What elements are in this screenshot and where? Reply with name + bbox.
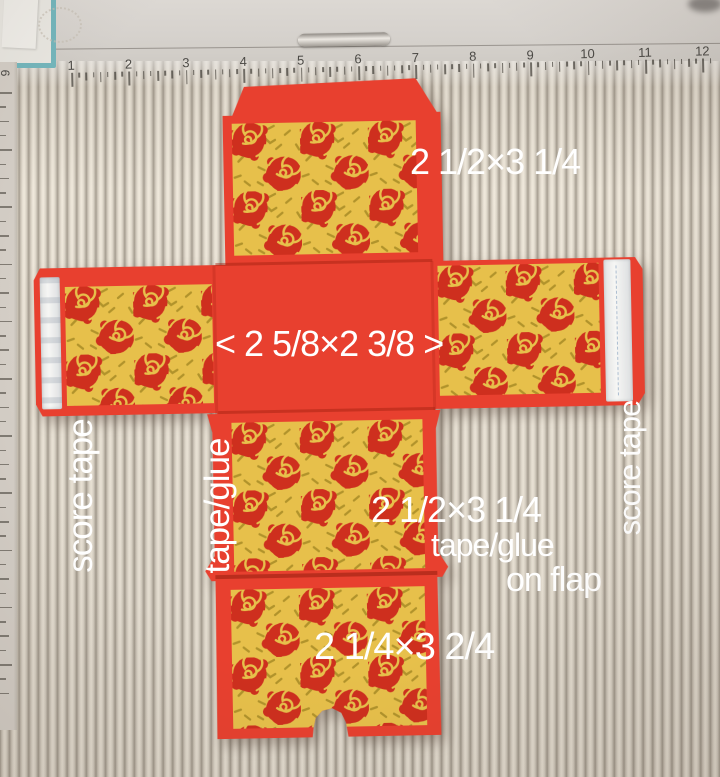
ruler-tick xyxy=(85,72,87,80)
ruler-tick xyxy=(236,69,238,74)
ruler-tick xyxy=(595,61,597,66)
side-ruler-tick xyxy=(0,507,6,509)
side-ruler-tick xyxy=(0,378,12,380)
ruler-tick xyxy=(136,71,138,76)
ruler-tick xyxy=(609,61,611,66)
ruler-tick xyxy=(473,64,475,78)
ruler-tick xyxy=(437,64,439,69)
ruler-tick xyxy=(351,66,353,71)
ruler-tick xyxy=(71,73,73,87)
annotation-tape-glue-left: tape/glue xyxy=(198,438,238,573)
ruler-tick xyxy=(265,68,267,73)
ruler-tick xyxy=(702,58,704,72)
side-ruler-number: 9 xyxy=(0,70,12,77)
annotation-center-size: < 2 5/8×2 3/8 > xyxy=(215,323,443,365)
tape-liner-marks xyxy=(40,277,63,409)
ruler-tick xyxy=(78,73,80,78)
ruler-inch-number: 1 xyxy=(67,58,75,73)
pattern-paper-top xyxy=(232,120,419,256)
ruler-tick xyxy=(114,72,116,80)
ruler-tick xyxy=(401,65,403,73)
ruler-tick xyxy=(157,71,159,81)
side-ruler-tick xyxy=(0,164,6,166)
ruler-tick xyxy=(164,71,166,76)
ruler-tick xyxy=(516,63,518,71)
ruler-tick xyxy=(250,69,252,74)
ruler-tick xyxy=(179,70,181,75)
side-ruler-tick xyxy=(0,392,6,394)
ruler-tick xyxy=(129,71,131,85)
side-ruler-tick xyxy=(0,664,12,666)
side-ruler-tick xyxy=(0,192,6,194)
ruler-tick xyxy=(638,60,640,65)
ruler-tick xyxy=(100,72,102,82)
ruler-inch-number: 5 xyxy=(297,53,305,68)
ruler-tick xyxy=(530,62,532,76)
ruler-tick xyxy=(222,69,224,74)
side-ruler-tick xyxy=(0,492,12,494)
side-ruler-tick xyxy=(0,535,6,537)
side-ruler-tick xyxy=(0,650,6,652)
ruler-tick xyxy=(509,63,511,68)
ruler-tick xyxy=(681,59,683,64)
ruler-inch-number: 3 xyxy=(182,55,190,70)
side-ruler-tick xyxy=(0,221,6,223)
ruler-tick xyxy=(329,67,331,77)
side-ruler-tick xyxy=(0,292,9,294)
ruler-inch-number: 2 xyxy=(125,56,133,71)
ruler-tick xyxy=(659,59,661,67)
ruler-tick xyxy=(423,65,425,70)
top-panel xyxy=(223,112,444,268)
side-ruler-tick xyxy=(0,106,6,108)
ruler-tick xyxy=(688,59,690,67)
ruler-tick xyxy=(344,67,346,75)
annotation-on-flap: on flap xyxy=(506,561,601,600)
side-ruler-tick xyxy=(0,264,12,266)
side-ruler-tick xyxy=(0,121,9,123)
side-ruler-tick xyxy=(0,621,6,623)
annotation-middle-size: 2 1/2×3 1/4 xyxy=(371,489,541,531)
ruler-tick xyxy=(415,65,417,79)
ruler-tick xyxy=(172,71,174,79)
ruler-tick xyxy=(372,66,374,74)
annotation-score-tape-right: score tape xyxy=(612,401,648,536)
ruler-inch-number: 4 xyxy=(239,54,247,69)
ruler-tick xyxy=(380,66,382,71)
side-ruler-tick xyxy=(0,206,12,208)
side-ruler-tick xyxy=(0,578,9,580)
ruler-tick xyxy=(315,67,317,75)
side-ruler-tick xyxy=(0,450,6,452)
side-ruler-tick xyxy=(0,321,12,323)
side-ruler xyxy=(0,62,17,730)
ruler-tick xyxy=(207,70,209,75)
side-ruler-tick xyxy=(0,421,6,423)
ruler-tick xyxy=(358,66,360,80)
side-ruler-tick xyxy=(0,435,12,437)
ruler-tick xyxy=(301,68,303,82)
ruler-tick xyxy=(566,62,568,67)
ruler-inch-number: 7 xyxy=(412,50,420,65)
ruler-tick xyxy=(143,71,145,79)
side-ruler-tick xyxy=(0,235,9,237)
ruler-tick xyxy=(458,64,460,72)
side-ruler-tick xyxy=(0,635,9,637)
side-ruler-tick xyxy=(0,364,6,366)
ruler-tick xyxy=(523,63,525,68)
pattern-paper-right xyxy=(437,263,600,396)
side-ruler-tick xyxy=(0,149,12,151)
ruler-tick xyxy=(559,62,561,72)
ruler-tick xyxy=(387,66,389,76)
annotation-tape-glue-flap: tape/glue xyxy=(431,527,554,564)
ruler-tick xyxy=(645,60,647,74)
ruler-tick xyxy=(652,60,654,65)
annotation-score-tape-left: score tape xyxy=(61,419,101,572)
score-tape-strip-left xyxy=(40,277,63,409)
ruler-inch-number: 8 xyxy=(469,49,477,64)
ruler-tick xyxy=(537,62,539,67)
side-ruler-tick xyxy=(0,521,9,523)
ruler-tick xyxy=(272,68,274,78)
ruler-tick xyxy=(286,68,288,76)
side-ruler-tick xyxy=(0,564,6,566)
tape-brand-print xyxy=(615,265,618,395)
ruler-tick xyxy=(308,67,310,72)
ruler-tick xyxy=(121,72,123,77)
score-tape-strip-right xyxy=(603,259,633,401)
ruler-tick xyxy=(322,67,324,72)
ruler-tick xyxy=(258,69,260,77)
side-ruler-tick xyxy=(0,278,6,280)
side-ruler-tick xyxy=(0,407,9,409)
ruler-tick xyxy=(215,70,217,80)
side-ruler-tick xyxy=(0,307,6,309)
craft-photo: 123456789101112 9 2 1/2×3 1/4 < 2 5/8 xyxy=(0,0,720,777)
ruler-tick xyxy=(186,70,188,84)
ruler-inch-number: 9 xyxy=(526,47,534,62)
ruler-tick xyxy=(487,63,489,71)
ruler-tick xyxy=(229,69,231,77)
ruler-tick xyxy=(631,60,633,68)
side-ruler-tick xyxy=(0,249,6,251)
ruler-tick xyxy=(623,60,625,65)
ruler-tick xyxy=(616,60,618,70)
ruler-inch-number: 10 xyxy=(580,46,595,61)
ruler-tick xyxy=(710,58,712,63)
ruler-tick xyxy=(150,71,152,76)
side-ruler-tick xyxy=(0,693,9,695)
ruler-tick xyxy=(451,64,453,69)
ruler-tick xyxy=(365,66,367,71)
ruler-tick xyxy=(695,59,697,64)
pattern-paper-left xyxy=(65,284,214,406)
annotation-bottom-size: 2 1/4×3 2/4 xyxy=(314,626,494,669)
ruler-inch-number: 12 xyxy=(695,43,710,58)
side-ruler-tick xyxy=(0,607,12,609)
ruler-inch-number: 11 xyxy=(638,45,652,60)
ruler-tick xyxy=(200,70,202,78)
side-ruler-tick xyxy=(0,464,9,466)
ruler-tick xyxy=(552,62,554,67)
ruler-tick xyxy=(480,64,482,69)
ruler-inch-number: 6 xyxy=(354,51,362,66)
ruler-tick xyxy=(580,61,582,66)
side-ruler-tick xyxy=(0,478,6,480)
ruler-tick xyxy=(573,61,575,69)
side-ruler-tick xyxy=(0,593,6,595)
ruler-tick xyxy=(466,64,468,69)
ruler-tick xyxy=(107,72,109,77)
ruler-tick xyxy=(667,59,669,64)
side-ruler-tick xyxy=(0,135,6,137)
ruler-tick xyxy=(394,65,396,70)
ruler-tick xyxy=(545,62,547,70)
side-ruler-tick xyxy=(0,335,6,337)
ruler-tick xyxy=(279,68,281,73)
ruler-tick xyxy=(243,69,245,83)
ruler-tick xyxy=(602,61,604,69)
ruler-tick xyxy=(430,65,432,73)
side-ruler-tick xyxy=(0,550,12,552)
ruler-tick xyxy=(337,67,339,72)
annotation-top-size: 2 1/2×3 1/4 xyxy=(410,141,580,183)
ruler-tick xyxy=(494,63,496,68)
side-ruler-tick xyxy=(0,678,6,680)
ruler-tick xyxy=(408,65,410,70)
ruler-tick xyxy=(193,70,195,75)
side-ruler-tick xyxy=(0,178,9,180)
ruler-tick xyxy=(444,64,446,74)
side-ruler-tick xyxy=(0,349,9,351)
ruler-tick xyxy=(294,68,296,73)
ruler-tick xyxy=(93,72,95,77)
ruler-tick xyxy=(502,63,504,73)
ruler-tick xyxy=(674,59,676,69)
ruler-tick xyxy=(588,61,590,75)
